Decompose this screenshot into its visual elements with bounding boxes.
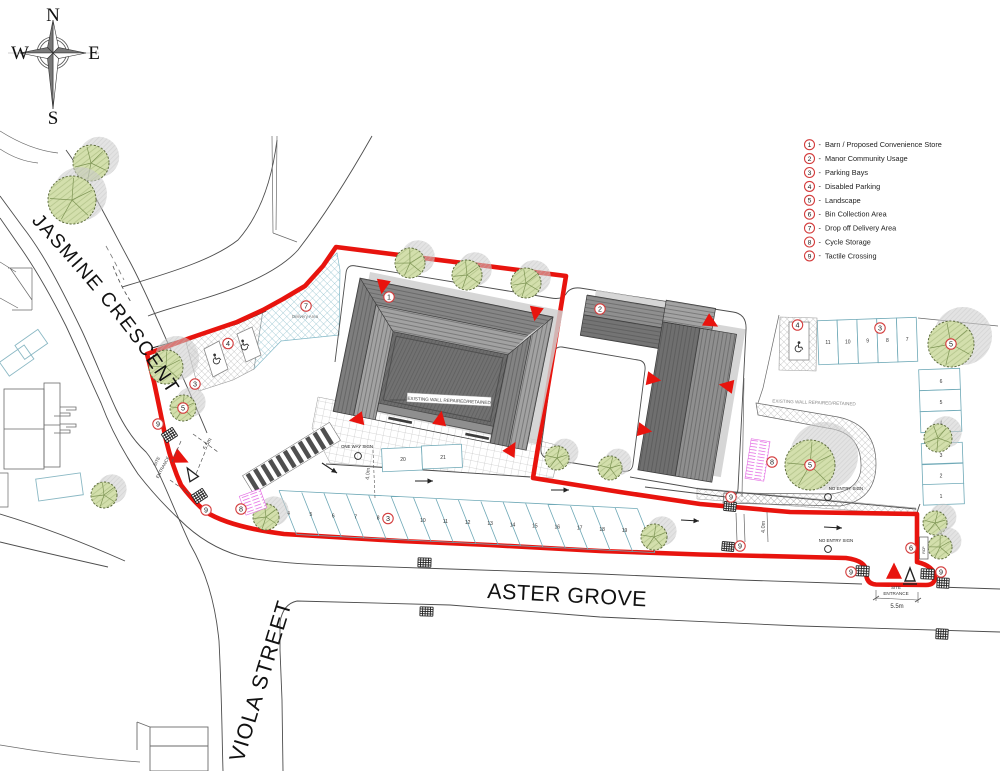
svg-text:16: 16 (555, 525, 561, 531)
svg-text:N: N (46, 5, 60, 26)
svg-text:8: 8 (770, 458, 774, 467)
svg-text:3: 3 (386, 514, 390, 523)
svg-text:21: 21 (440, 455, 446, 461)
svg-text:12: 12 (465, 520, 471, 526)
svg-text:1: 1 (387, 293, 391, 302)
svg-text:6: 6 (808, 212, 812, 219)
svg-text:Cycle Storage: Cycle Storage (825, 238, 871, 247)
svg-text:13: 13 (487, 521, 493, 527)
svg-text:2: 2 (808, 156, 812, 163)
svg-text:5: 5 (181, 404, 185, 413)
svg-text:5: 5 (808, 461, 812, 470)
svg-text:4.0m: 4.0m (365, 467, 372, 480)
svg-text:8: 8 (377, 516, 380, 522)
svg-text:Drop off Delivery Area: Drop off Delivery Area (825, 224, 897, 233)
svg-text:3: 3 (193, 380, 197, 389)
svg-text:9: 9 (866, 339, 869, 345)
svg-text:7: 7 (808, 226, 812, 233)
svg-text:ONE WAY SIGN: ONE WAY SIGN (341, 444, 373, 449)
svg-text:2: 2 (598, 305, 602, 314)
svg-text:W: W (11, 43, 29, 64)
svg-text:6: 6 (332, 513, 335, 519)
svg-text:9: 9 (204, 506, 208, 515)
svg-text:18: 18 (599, 527, 605, 533)
svg-text:5: 5 (310, 512, 313, 518)
svg-text:3: 3 (878, 324, 882, 333)
svg-text:Parking Bays: Parking Bays (825, 168, 868, 177)
svg-text:10: 10 (845, 339, 851, 345)
svg-text:Bin Collection Area: Bin Collection Area (825, 210, 888, 219)
svg-text:14: 14 (510, 522, 516, 528)
svg-text:6: 6 (940, 379, 943, 385)
svg-text:9: 9 (939, 568, 943, 577)
svg-text:Manor Community Usage: Manor Community Usage (825, 154, 908, 163)
svg-text:6: 6 (909, 544, 913, 553)
svg-text:10: 10 (420, 518, 426, 524)
svg-text:9: 9 (156, 420, 160, 429)
svg-text:Tactile Crossing: Tactile Crossing (825, 251, 877, 260)
svg-text:8: 8 (886, 338, 889, 344)
svg-text:15: 15 (532, 523, 538, 529)
svg-text:Landscape: Landscape (825, 196, 861, 205)
svg-text:Barn / Proposed Convenience St: Barn / Proposed Convenience Store (825, 140, 942, 149)
svg-text:8: 8 (808, 239, 812, 246)
svg-text:ENTRANCE: ENTRANCE (883, 591, 908, 596)
svg-text:11: 11 (443, 519, 448, 525)
svg-text:NO ENTRY SIGN: NO ENTRY SIGN (819, 538, 853, 543)
svg-text:5: 5 (949, 340, 953, 349)
svg-text:SITE: SITE (891, 585, 901, 590)
svg-text:Delivery Area: Delivery Area (292, 314, 319, 319)
svg-text:5: 5 (940, 400, 943, 406)
svg-text:1: 1 (940, 494, 943, 500)
svg-text:3: 3 (940, 453, 943, 459)
svg-text:4: 4 (796, 321, 800, 330)
svg-text:9: 9 (729, 493, 733, 502)
svg-text:2: 2 (940, 474, 943, 480)
svg-text:20: 20 (400, 457, 406, 463)
svg-text:5: 5 (808, 198, 812, 205)
svg-text:S: S (48, 108, 59, 129)
svg-text:17: 17 (577, 526, 583, 532)
svg-text:NO ENTRY SIGN: NO ENTRY SIGN (829, 486, 863, 491)
svg-text:11: 11 (825, 340, 830, 346)
svg-text:4: 4 (226, 339, 230, 348)
svg-text:9: 9 (808, 253, 812, 260)
svg-text:4: 4 (808, 184, 812, 191)
svg-text:3: 3 (808, 170, 812, 177)
svg-text:9: 9 (849, 568, 853, 577)
svg-text:9: 9 (738, 542, 742, 551)
svg-text:RCP: RCP (922, 546, 926, 554)
svg-text:7: 7 (304, 302, 308, 311)
svg-text:8: 8 (239, 505, 243, 514)
svg-text:5.5m: 5.5m (890, 604, 903, 610)
svg-text:Disabled Parking: Disabled Parking (825, 182, 880, 191)
svg-text:19: 19 (622, 528, 628, 534)
svg-text:7: 7 (354, 514, 357, 520)
svg-text:7: 7 (906, 337, 909, 343)
svg-text:1: 1 (808, 142, 812, 149)
svg-text:4.0m: 4.0m (761, 520, 767, 533)
svg-text:E: E (88, 43, 100, 64)
